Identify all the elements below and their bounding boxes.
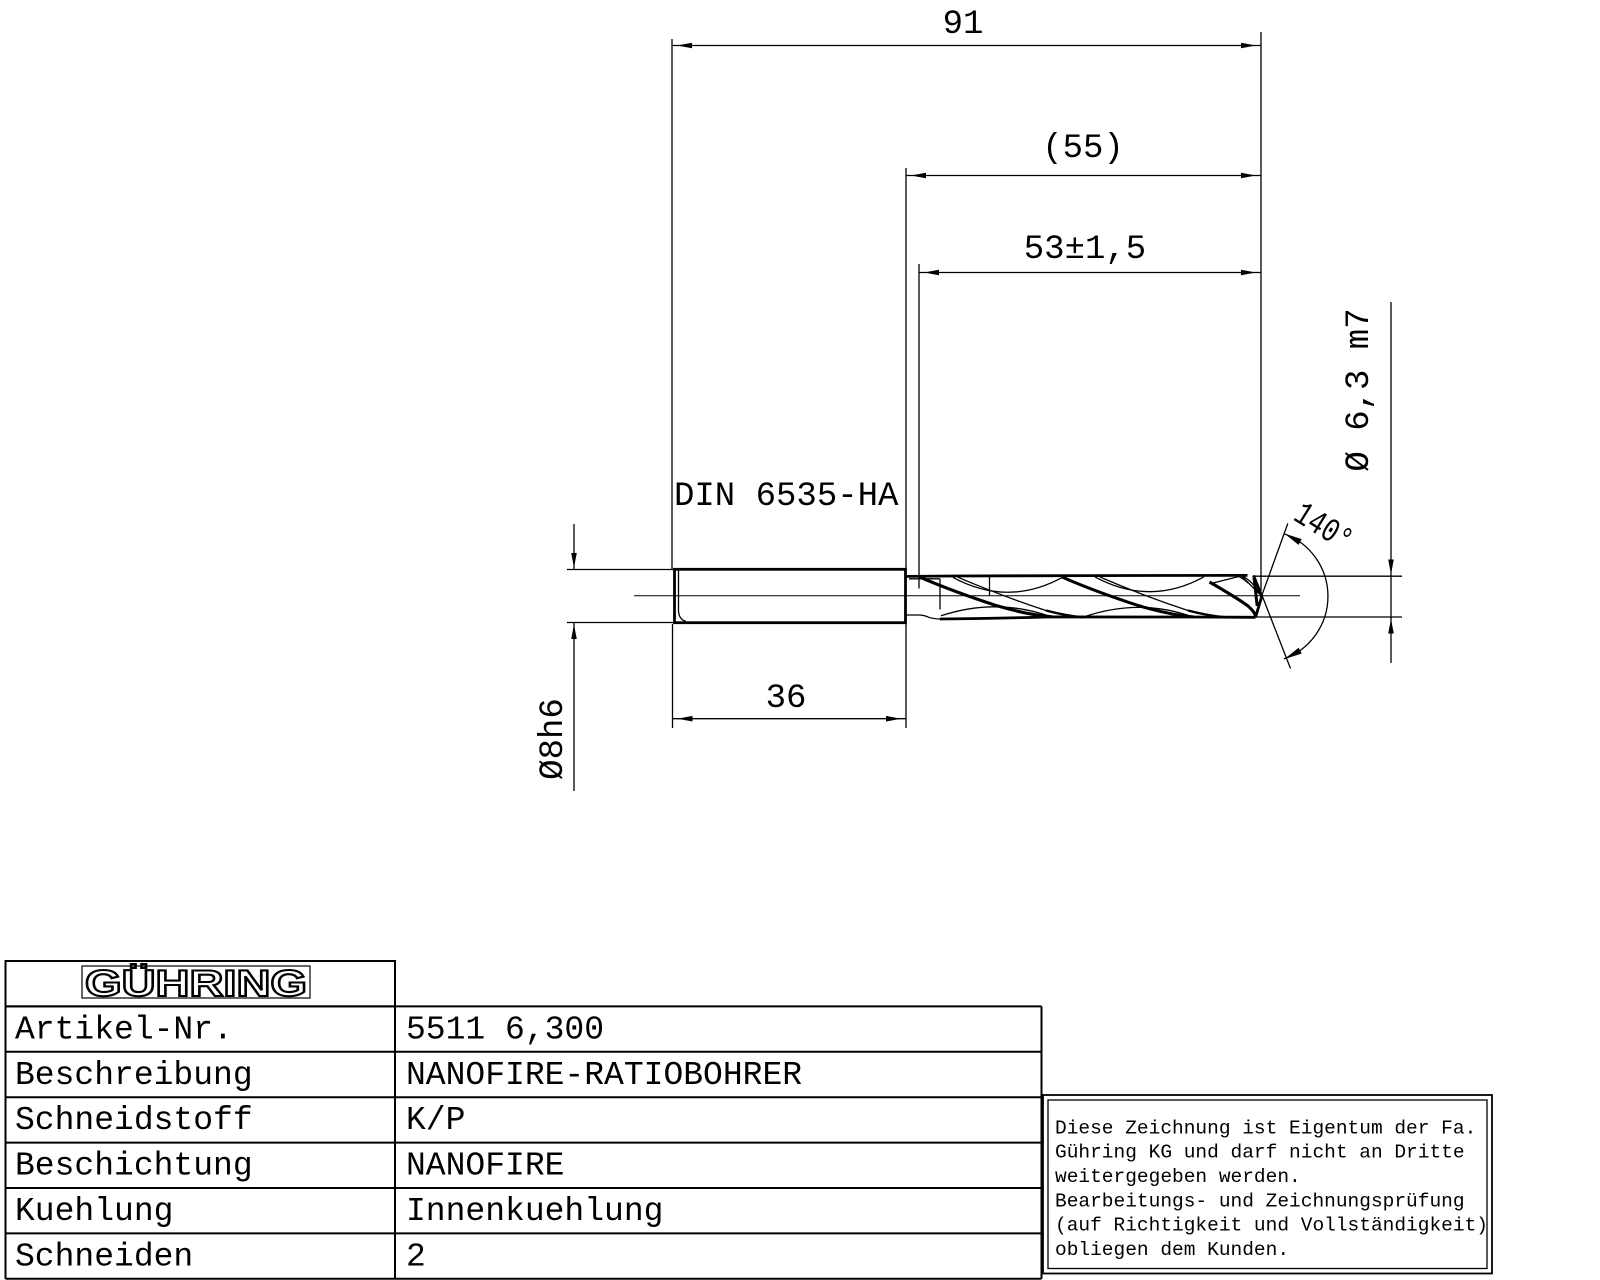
svg-text:NANOFIRE: NANOFIRE — [406, 1148, 564, 1185]
svg-text:Artikel-Nr.: Artikel-Nr. — [15, 1011, 233, 1048]
svg-text:Schneiden: Schneiden — [15, 1238, 193, 1275]
svg-text:Bearbeitungs- und Zeichnungspr: Bearbeitungs- und Zeichnungsprüfung — [1055, 1190, 1465, 1212]
svg-text:Gühring KG und darf nicht an D: Gühring KG und darf nicht an Dritte — [1055, 1142, 1465, 1164]
svg-text:36: 36 — [766, 680, 807, 718]
svg-text:K/P: K/P — [406, 1102, 465, 1139]
svg-text:Ø 6,3 m7: Ø 6,3 m7 — [1341, 308, 1379, 471]
svg-text:Beschreibung: Beschreibung — [15, 1057, 253, 1094]
svg-text:(auf Richtigkeit und Vollständ: (auf Richtigkeit und Vollständigkeit) — [1055, 1215, 1488, 1237]
svg-text:2: 2 — [406, 1238, 426, 1275]
svg-text:(55): (55) — [1042, 130, 1124, 168]
svg-text:NANOFIRE-RATIOBOHRER: NANOFIRE-RATIOBOHRER — [406, 1057, 802, 1094]
svg-text:Innenkuehlung: Innenkuehlung — [406, 1193, 663, 1230]
svg-text:91: 91 — [943, 6, 984, 44]
svg-text:Beschichtung: Beschichtung — [15, 1148, 253, 1185]
svg-text:Ø8h6: Ø8h6 — [535, 698, 573, 780]
svg-text:weitergegeben werden.: weitergegeben werden. — [1055, 1166, 1301, 1188]
svg-text:obliegen dem Kunden.: obliegen dem Kunden. — [1055, 1239, 1289, 1261]
svg-text:Schneidstoff: Schneidstoff — [15, 1102, 253, 1139]
svg-text:Kuehlung: Kuehlung — [15, 1193, 173, 1230]
svg-text:Diese Zeichnung ist Eigentum d: Diese Zeichnung ist Eigentum der Fa. — [1055, 1117, 1476, 1139]
svg-text:53±1,5: 53±1,5 — [1024, 231, 1146, 269]
svg-text:DIN 6535-HA: DIN 6535-HA — [674, 478, 899, 516]
svg-text:5511 6,300: 5511 6,300 — [406, 1011, 604, 1048]
